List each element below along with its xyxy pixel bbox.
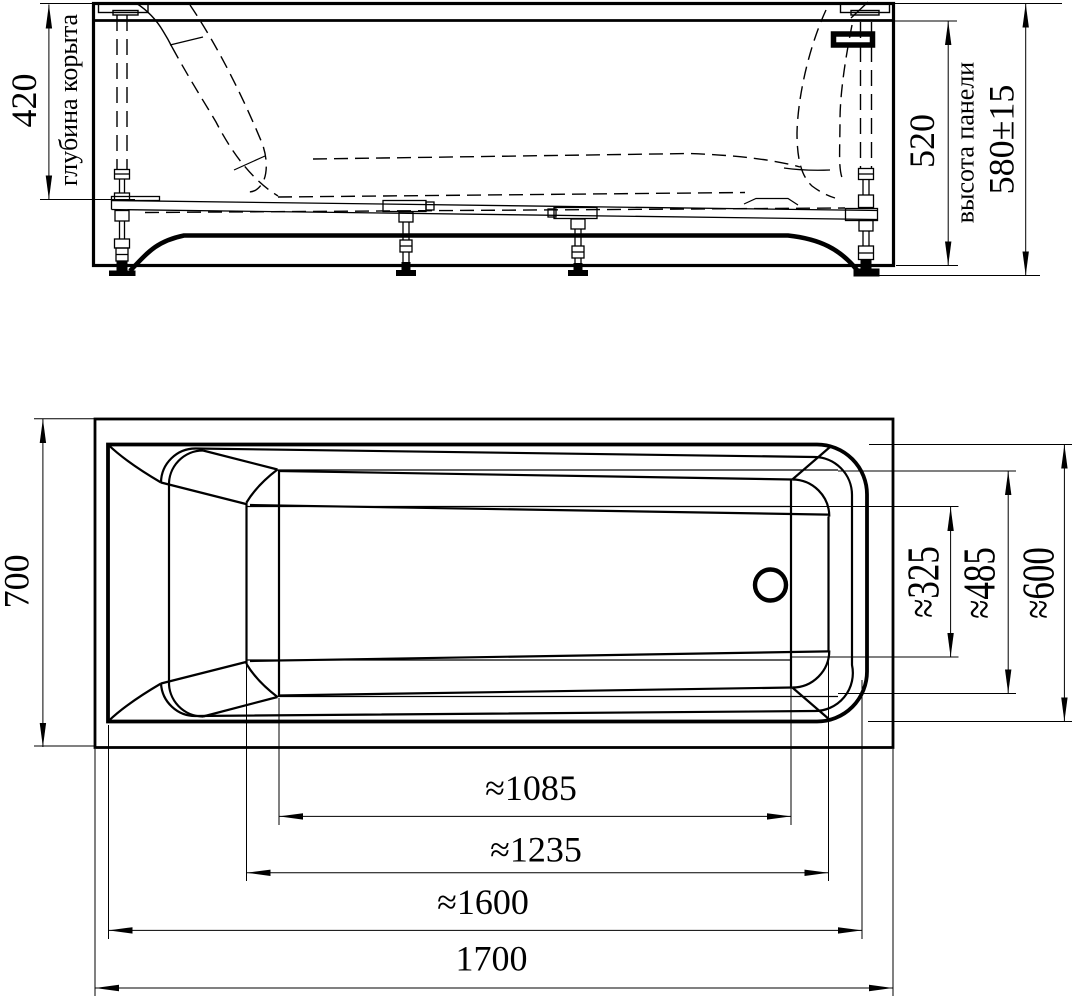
svg-text:≈325: ≈325 — [898, 546, 949, 618]
svg-text:≈1085: ≈1085 — [485, 768, 577, 808]
svg-text:420: 420 — [4, 74, 44, 128]
svg-text:глубина корыта: глубина корыта — [54, 14, 83, 187]
svg-text:≈485: ≈485 — [954, 547, 1005, 619]
svg-text:высота панели: высота панели — [951, 62, 980, 224]
svg-text:1700: 1700 — [456, 939, 528, 979]
svg-text:580±15: 580±15 — [982, 85, 1022, 195]
svg-text:≈1235: ≈1235 — [490, 830, 582, 870]
svg-text:520: 520 — [902, 114, 942, 168]
svg-text:≈600: ≈600 — [1013, 547, 1064, 619]
svg-text:700: 700 — [0, 554, 37, 608]
svg-text:≈1600: ≈1600 — [437, 882, 529, 922]
